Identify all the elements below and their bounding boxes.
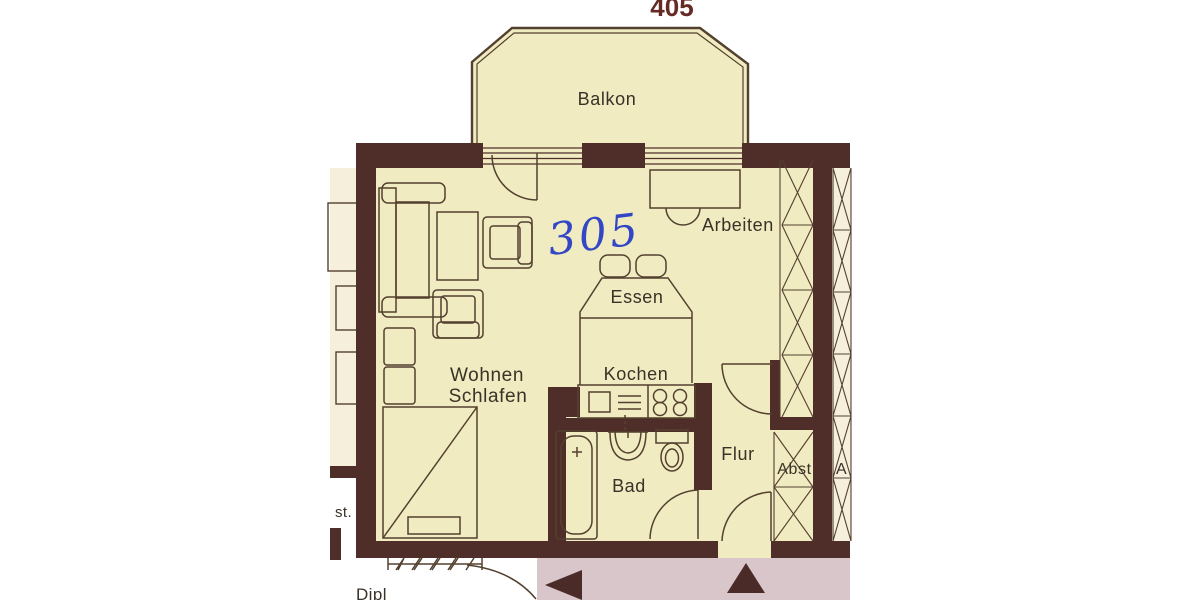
stairwell-area (537, 556, 850, 600)
wall-bottom-left (356, 541, 718, 558)
room-label-flur: Flur (721, 444, 754, 464)
fragment-neighbor-abst-right: A (836, 461, 847, 478)
fragment-bottom-left: Dipl (356, 585, 387, 600)
balcony-floor (472, 28, 748, 147)
wall-abst-top (770, 417, 832, 430)
unit-number-above: 405 (650, 0, 693, 22)
room-label-kochen: Kochen (604, 364, 669, 384)
neighbor-wall-stub (330, 528, 341, 560)
room-label-abst: Abst. (777, 461, 816, 478)
wall-top-pier (582, 143, 645, 168)
balcony (472, 28, 748, 147)
stairwell-floor (537, 556, 850, 600)
wall-bad-right (694, 383, 712, 490)
fragment-neighbor-abst-left: st. (335, 504, 352, 521)
room-label-balkon: Balkon (578, 89, 637, 109)
wall-right (813, 143, 832, 558)
wall-left (356, 143, 376, 558)
room-label-essen: Essen (610, 287, 663, 307)
neighbor-left-floor (330, 168, 357, 473)
wall-flur-right (770, 360, 780, 420)
entry-gap-fill (718, 541, 771, 558)
room-label-arbeiten: Arbeiten (702, 215, 774, 235)
wall-top-right (742, 143, 850, 168)
room-label-wohnen: Wohnen (450, 365, 524, 386)
floor-plan-image: Balkon Arbeiten Essen Kochen Wohnen Schl… (0, 0, 1200, 600)
wall-kitchen-left-stub (548, 387, 580, 417)
room-label-bad: Bad (612, 476, 646, 496)
room-label-schlafen: Schlafen (449, 386, 528, 407)
wall-bottom-right (771, 541, 850, 558)
